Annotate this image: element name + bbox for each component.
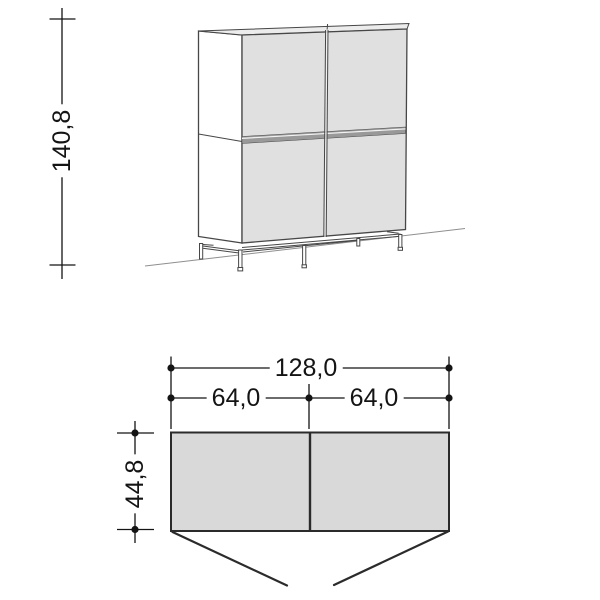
front-middle-foot bbox=[302, 265, 306, 268]
front-right-leg bbox=[399, 235, 402, 248]
right-width-dimension-label: 64,0 bbox=[345, 385, 404, 411]
right-door-swing-line bbox=[334, 532, 448, 586]
cabinet-perspective-view bbox=[145, 24, 465, 271]
height-dimension-label: 140,8 bbox=[49, 105, 75, 178]
left-width-dimension-label: 64,0 bbox=[207, 385, 266, 411]
door-seam-top-edge bbox=[327, 24, 328, 30]
left-door-swing-line bbox=[173, 532, 288, 586]
front-right-foot bbox=[398, 247, 402, 250]
total-width-dimension-label: 128,0 bbox=[270, 355, 343, 381]
furniture-dimension-drawing: 140,8 128,0 64,0 64,0 44,8 bbox=[0, 0, 600, 600]
back-middle-leg bbox=[357, 239, 360, 247]
front-left-foot bbox=[238, 268, 243, 271]
half-width-left-dot bbox=[167, 394, 174, 401]
drawing-linework bbox=[0, 0, 600, 600]
depth-top-dot bbox=[131, 429, 138, 436]
front-middle-leg bbox=[303, 246, 306, 266]
left-rail-top bbox=[203, 246, 239, 251]
front-left-leg bbox=[239, 250, 242, 268]
depth-bottom-dot bbox=[131, 526, 138, 533]
left-rail-bottom bbox=[203, 248, 239, 253]
back-left-bracket bbox=[203, 245, 214, 246]
back-right-bracket bbox=[387, 232, 399, 233]
cabinet-plan-view bbox=[171, 433, 449, 586]
back-left-leg bbox=[200, 244, 203, 260]
total-width-right-dot bbox=[445, 364, 452, 371]
half-width-middle-dot bbox=[305, 394, 312, 401]
total-width-left-dot bbox=[167, 364, 174, 371]
half-width-right-dot bbox=[445, 394, 452, 401]
cabinet-side-face bbox=[199, 31, 243, 243]
depth-dimension-label: 44,8 bbox=[122, 455, 148, 514]
